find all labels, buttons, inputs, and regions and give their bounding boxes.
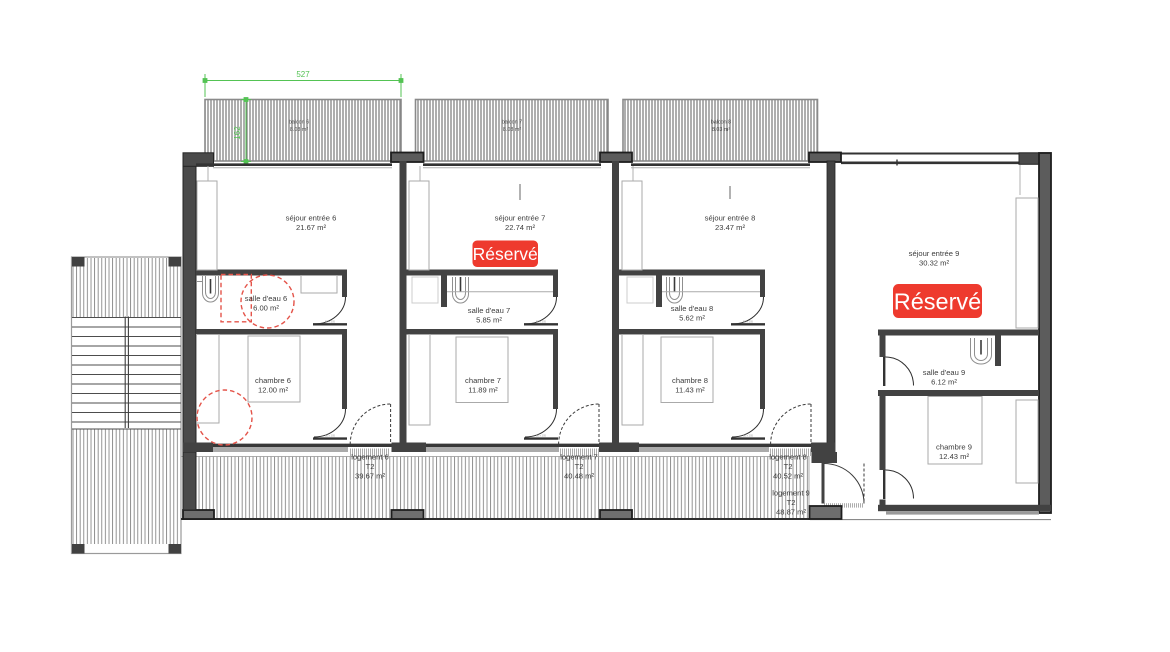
svg-text:527: 527 bbox=[296, 70, 310, 79]
svg-text:12.00 m²: 12.00 m² bbox=[258, 386, 288, 395]
svg-text:séjour entrée 6: séjour entrée 6 bbox=[286, 214, 337, 223]
svg-text:salle d'eau 8: salle d'eau 8 bbox=[671, 304, 713, 313]
svg-text:T2: T2 bbox=[575, 462, 584, 471]
svg-text:5.85 m²: 5.85 m² bbox=[476, 316, 502, 325]
svg-text:séjour entrée 8: séjour entrée 8 bbox=[705, 214, 756, 223]
svg-text:21.67 m²: 21.67 m² bbox=[296, 223, 326, 232]
svg-text:80 x 205: 80 x 205 bbox=[536, 434, 547, 438]
svg-text:30.32 m²: 30.32 m² bbox=[919, 259, 949, 268]
svg-text:balcon 7: balcon 7 bbox=[502, 120, 522, 126]
svg-text:39.67 m²: 39.67 m² bbox=[355, 472, 385, 481]
svg-text:séjour entrée 7: séjour entrée 7 bbox=[495, 214, 546, 223]
svg-text:80 x 205: 80 x 205 bbox=[536, 320, 547, 324]
svg-text:logement 7: logement 7 bbox=[560, 453, 598, 462]
svg-text:balcon 8: balcon 8 bbox=[711, 120, 731, 126]
svg-text:80 x 205: 80 x 205 bbox=[325, 434, 336, 438]
svg-text:11.43 m²: 11.43 m² bbox=[675, 386, 705, 395]
svg-text:T2: T2 bbox=[366, 462, 375, 471]
svg-text:11.89 m²: 11.89 m² bbox=[468, 386, 498, 395]
svg-text:162: 162 bbox=[233, 126, 242, 140]
svg-text:5.62 m²: 5.62 m² bbox=[679, 314, 705, 323]
svg-text:Réservé: Réservé bbox=[894, 289, 982, 315]
svg-text:22.74 m²: 22.74 m² bbox=[505, 223, 535, 232]
svg-text:6.12 m²: 6.12 m² bbox=[931, 378, 957, 387]
svg-text:chambre 6: chambre 6 bbox=[255, 376, 291, 385]
svg-text:séjour entrée 9: séjour entrée 9 bbox=[909, 249, 960, 258]
svg-text:6.00 m²: 6.00 m² bbox=[253, 304, 279, 313]
svg-text:T2: T2 bbox=[784, 462, 793, 471]
svg-text:Réservé: Réservé bbox=[473, 244, 538, 264]
svg-text:chambre 9: chambre 9 bbox=[936, 443, 972, 452]
svg-text:logement 9: logement 9 bbox=[772, 489, 810, 498]
svg-text:chambre 8: chambre 8 bbox=[672, 376, 708, 385]
svg-text:balcon 6: balcon 6 bbox=[289, 120, 309, 126]
svg-text:chambre 7: chambre 7 bbox=[465, 376, 501, 385]
svg-text:48.87 m²: 48.87 m² bbox=[776, 508, 806, 517]
svg-text:80 x 205: 80 x 205 bbox=[325, 320, 336, 324]
svg-text:80 x 205: 80 x 205 bbox=[743, 434, 754, 438]
svg-text:23.47 m²: 23.47 m² bbox=[715, 223, 745, 232]
svg-text:8.03 m²: 8.03 m² bbox=[712, 127, 730, 133]
svg-text:logement 8: logement 8 bbox=[769, 453, 807, 462]
svg-text:40.52 m²: 40.52 m² bbox=[773, 472, 803, 481]
svg-text:salle d'eau 9: salle d'eau 9 bbox=[923, 368, 965, 377]
svg-text:40.48 m²: 40.48 m² bbox=[564, 472, 594, 481]
svg-text:80 x 205: 80 x 205 bbox=[743, 320, 754, 324]
svg-text:salle d'eau 7: salle d'eau 7 bbox=[468, 306, 510, 315]
svg-text:T2: T2 bbox=[787, 498, 796, 507]
svg-text:8.03 m²: 8.03 m² bbox=[503, 127, 521, 133]
svg-text:logement 6: logement 6 bbox=[351, 453, 389, 462]
svg-text:12.43 m²: 12.43 m² bbox=[939, 452, 969, 461]
svg-text:salle d'eau 6: salle d'eau 6 bbox=[245, 294, 287, 303]
svg-text:8.03 m²: 8.03 m² bbox=[290, 127, 308, 133]
